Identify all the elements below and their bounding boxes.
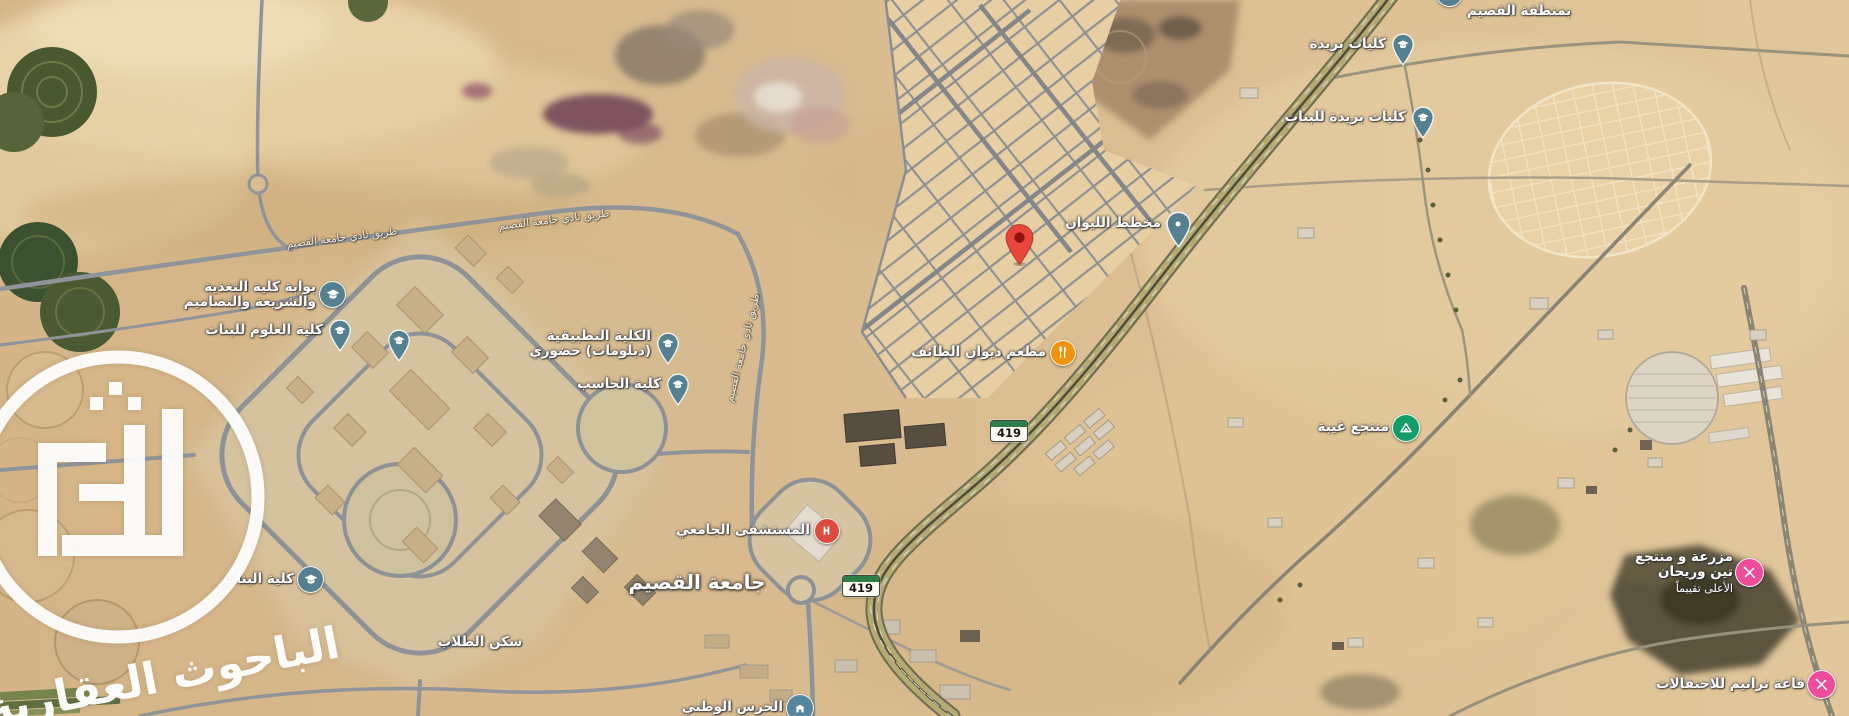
knife-fork-icon — [1055, 345, 1070, 360]
taranim-hall-marker[interactable] — [1807, 670, 1836, 699]
teen-rayhan-farm-marker[interactable] — [1735, 558, 1764, 587]
applied-college-label[interactable]: الكلية التطبيقية(دبلومات) حضوري — [529, 329, 651, 360]
shield-number: 419 — [991, 427, 1027, 442]
university-hospital-label-line: المستشفى الجامعي — [676, 523, 810, 539]
girls-college-marker[interactable] — [297, 566, 324, 593]
ghaybah-resort-label-line: منتجع غيبة — [1318, 420, 1389, 436]
qassim-region-label-line: بمنطقة القصيم — [1467, 4, 1571, 20]
gate-college-marker[interactable] — [319, 281, 346, 308]
ghaybah-resort-marker[interactable] — [1392, 414, 1420, 442]
hospital-h-icon — [819, 523, 834, 538]
graduation-cap-icon — [333, 324, 347, 338]
graduation-cap-icon — [1396, 38, 1410, 52]
road-label-2: طريق ثادي جامعة القصيم — [498, 207, 610, 233]
national-guard-marker[interactable] — [786, 694, 814, 716]
liwan-plan-label-line: مخطط الليوان — [1065, 216, 1161, 232]
science-girls-label-line: كلية العلوم للبنات — [205, 323, 323, 339]
science-girls-marker[interactable] — [328, 319, 352, 352]
graduation-cap-icon — [671, 378, 685, 392]
gate-college-label[interactable]: بوابة كلية التغذيةوالشريعة والتصاميم — [184, 280, 316, 311]
taranim-hall-label[interactable]: قاعة ترانيم للاحتفالات — [1656, 677, 1805, 693]
area-label-1: جامعة القصيم — [628, 570, 765, 594]
graduation-cap-icon — [333, 324, 347, 338]
graduation-cap-icon — [303, 572, 319, 588]
national-guard-label[interactable]: الحرس الوطني — [682, 700, 783, 716]
tools-icon — [1741, 564, 1758, 581]
dropped-red-pin[interactable] — [1004, 223, 1035, 266]
tools-icon — [1813, 676, 1830, 693]
diwan-taif-restaurant-label[interactable]: مطعم ديوان الطائف — [911, 345, 1046, 361]
graduation-cap-icon — [325, 287, 341, 303]
road-label-1: طريق ثادي جامعة القصيم — [286, 225, 398, 251]
computer-college-label[interactable]: كلية الحاسب — [577, 377, 661, 393]
girls-college-label[interactable]: كلية البنات — [223, 572, 294, 588]
student-housing-label-line: سكن الطلاب — [400, 635, 560, 651]
shield-number: 419 — [843, 582, 879, 597]
building-icon — [792, 700, 808, 716]
graduation-cap-icon — [1442, 0, 1458, 2]
knife-fork-icon — [1055, 345, 1070, 360]
graduation-cap-icon — [671, 378, 685, 392]
graduation-cap-icon — [1416, 111, 1430, 125]
computer-college-label-line: كلية الحاسب — [577, 377, 661, 393]
university-hospital-label[interactable]: المستشفى الجامعي — [676, 523, 810, 539]
building-icon — [792, 700, 808, 716]
dot-icon — [1171, 217, 1185, 231]
national-guard-label-line: الحرس الوطني — [682, 700, 783, 716]
graduation-cap-icon — [1416, 111, 1430, 125]
graduation-cap-icon — [303, 572, 319, 588]
graduation-cap-icon — [325, 287, 341, 303]
university-hospital-marker[interactable] — [814, 518, 840, 544]
dot-icon — [1171, 217, 1185, 231]
gate-college-label-line: بوابة كلية التغذية — [184, 280, 316, 296]
buraydah-girls-marker[interactable] — [1411, 106, 1435, 139]
buraydah-girls-label[interactable]: كليات بريدة للبنات — [1285, 110, 1406, 126]
girls-college-label-line: كلية البنات — [223, 572, 294, 588]
road-label-3: طريق ثادي جامعة القصيم — [724, 292, 763, 403]
red-pin-icon — [1004, 223, 1035, 266]
tools-icon — [1741, 564, 1758, 581]
graduation-cap-icon — [661, 337, 675, 351]
poi-layer: بوابة كلية التغذيةوالشريعة والتصاميمكلية… — [0, 0, 1849, 716]
graduation-cap-icon — [661, 337, 675, 351]
map-canvas[interactable]: بوابة كلية التغذيةوالشريعة والتصاميمكلية… — [0, 0, 1849, 716]
tent-icon — [1398, 420, 1414, 436]
teen-rayhan-farm-label-line: تين وريحان — [1635, 565, 1733, 581]
route-shield-419-2: 419 — [842, 575, 880, 598]
student-housing-label: سكن الطلاب — [400, 635, 560, 651]
liwan-plan-marker[interactable] — [1165, 211, 1192, 248]
buraydah-colleges-marker[interactable] — [1391, 33, 1415, 66]
taranim-hall-label-line: قاعة ترانيم للاحتفالات — [1656, 677, 1805, 693]
qassim-region-marker[interactable] — [1436, 0, 1463, 7]
graduation-cap-icon — [1442, 0, 1458, 2]
liwan-plan-label[interactable]: مخطط الليوان — [1065, 216, 1161, 232]
buraydah-girls-label-line: كليات بريدة للبنات — [1285, 110, 1406, 126]
gate-college-label-line: والشريعة والتصاميم — [184, 295, 316, 311]
graduation-cap-icon — [1396, 38, 1410, 52]
diwan-taif-restaurant-marker[interactable] — [1050, 340, 1076, 366]
campus-college-3-marker[interactable] — [387, 329, 411, 362]
buraydah-colleges-label-line: كليات بريدة — [1309, 37, 1386, 53]
diwan-taif-restaurant-label-line: مطعم ديوان الطائف — [911, 345, 1046, 361]
hospital-h-icon — [819, 523, 834, 538]
applied-college-label-line: (دبلومات) حضوري — [529, 344, 651, 360]
science-girls-label[interactable]: كلية العلوم للبنات — [205, 323, 323, 339]
teen-rayhan-farm-label[interactable]: مزرعة و منتجعتين وريحانالأعلى تقييماً — [1635, 550, 1733, 597]
graduation-cap-icon — [392, 334, 406, 348]
route-shield-419-1: 419 — [990, 420, 1028, 443]
tent-icon — [1398, 420, 1414, 436]
tools-icon — [1813, 676, 1830, 693]
applied-college-marker[interactable] — [656, 332, 680, 365]
teen-rayhan-farm-label-line: الأعلى تقييماً — [1635, 581, 1733, 597]
computer-college-marker[interactable] — [666, 373, 690, 406]
applied-college-label-line: الكلية التطبيقية — [529, 329, 651, 345]
ghaybah-resort-label[interactable]: منتجع غيبة — [1318, 420, 1389, 436]
teen-rayhan-farm-label-line: مزرعة و منتجع — [1635, 550, 1733, 566]
qassim-region-label[interactable]: بمنطقة القصيم — [1467, 4, 1571, 20]
buraydah-colleges-label[interactable]: كليات بريدة — [1309, 37, 1386, 53]
graduation-cap-icon — [392, 334, 406, 348]
